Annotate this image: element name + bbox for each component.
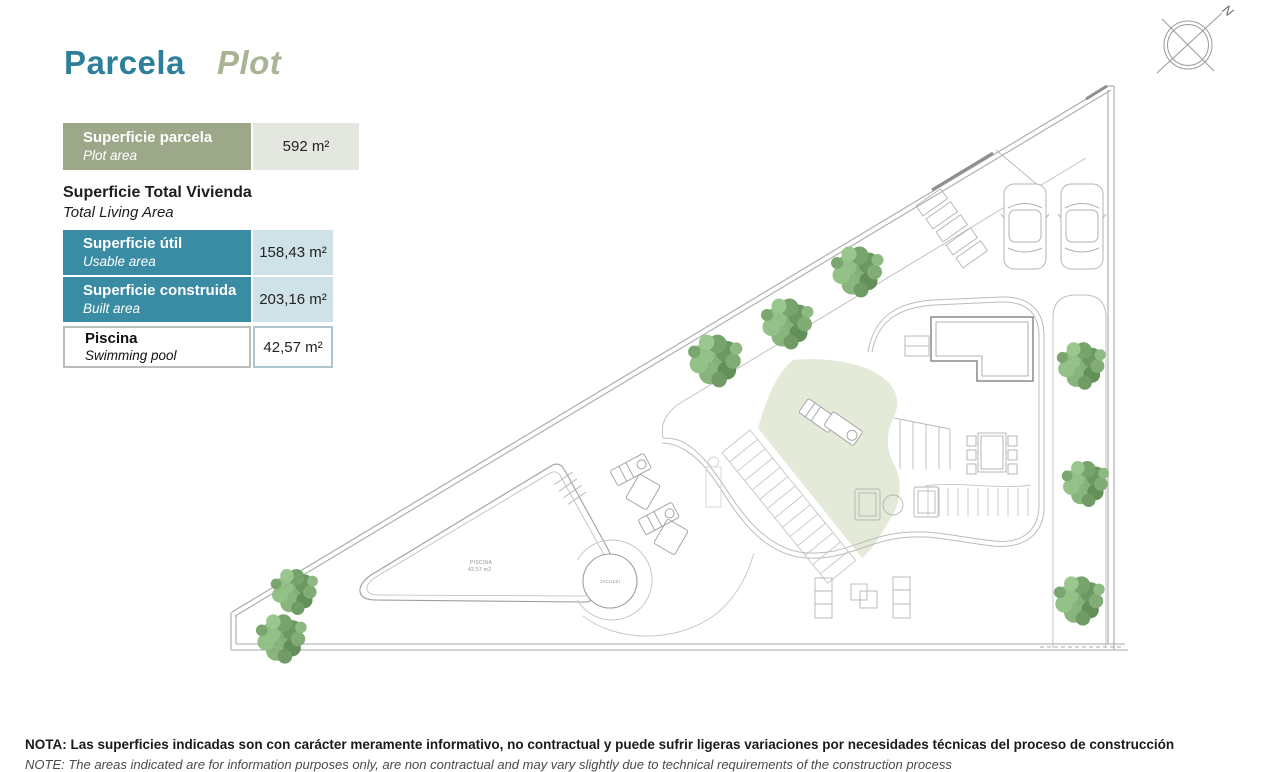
- pool-label: PISCINA: [470, 560, 492, 566]
- plot-area-label-en: Plot area: [83, 148, 251, 165]
- built-area-label-cell: Superficie construida Built area: [63, 277, 251, 322]
- legend-row-swimming-pool: Piscina Swimming pool 42,57 m²: [63, 326, 333, 368]
- dining-set: [967, 433, 1017, 474]
- section-title-es: Superficie Total Vivienda: [63, 183, 252, 204]
- compass-north-label: N: [1219, 2, 1236, 20]
- disclaimer-note: NOTA: Las superficies indicadas son con …: [25, 737, 1260, 772]
- legend-row-usable-area: Superficie útil Usable area 158,43 m²: [63, 230, 333, 275]
- disclaimer-note-en: NOTE: The areas indicated are for inform…: [25, 757, 1260, 772]
- plot-area-label-es: Superficie parcela: [83, 128, 251, 148]
- pool-value: 42,57 m²: [253, 326, 333, 368]
- usable-area-label-es: Superficie útil: [83, 234, 251, 254]
- plot-area-value: 592 m²: [253, 123, 359, 170]
- pool-label-cell: Piscina Swimming pool: [63, 326, 251, 368]
- plot-plan-page: PISCINA 42,57 m2 JACUZZI: [0, 0, 1280, 768]
- site-plan: PISCINA 42,57 m2 JACUZZI: [0, 0, 1280, 768]
- page-title: ParcelaPlot: [64, 44, 281, 82]
- built-area-label-en: Built area: [83, 301, 251, 318]
- decking-stripes-right: [925, 484, 1031, 516]
- car: [1058, 184, 1106, 269]
- utility-box: [905, 336, 929, 356]
- page-title-en: Plot: [217, 44, 281, 81]
- compass-icon: N: [1157, 2, 1237, 73]
- parked-cars: [1001, 184, 1106, 269]
- pool-label-es: Piscina: [85, 329, 249, 349]
- legend-row-plot-area: Superficie parcela Plot area 592 m²: [63, 123, 359, 170]
- wall-segments: [932, 86, 1107, 190]
- legend-section-header: Superficie Total Vivienda Total Living A…: [63, 183, 252, 223]
- built-area-label-es: Superficie construida: [83, 281, 251, 301]
- disclaimer-note-es: NOTA: Las superficies indicadas son con …: [25, 737, 1260, 752]
- usable-area-label-en: Usable area: [83, 254, 251, 271]
- lawn: [758, 359, 900, 558]
- usable-area-value: 158,43 m²: [253, 230, 333, 275]
- pool-label-en: Swimming pool: [85, 348, 249, 365]
- poolside-loungers: [610, 453, 721, 555]
- usable-area-label-cell: Superficie útil Usable area: [63, 230, 251, 275]
- car: [1001, 184, 1049, 269]
- pool-area-label: 42,57 m2: [468, 567, 491, 573]
- legend-row-built-area: Superficie construida Built area 203,16 …: [63, 277, 333, 322]
- plot-area-label-cell: Superficie parcela Plot area: [63, 123, 251, 170]
- stairs-stripes: [894, 418, 950, 469]
- built-area-value: 203,16 m²: [253, 277, 333, 322]
- page-title-es: Parcela: [64, 44, 185, 81]
- pool: PISCINA 42,57 m2: [360, 464, 611, 602]
- terrace-loungers: [815, 577, 910, 618]
- section-title-en: Total Living Area: [63, 204, 252, 223]
- house: [905, 317, 1033, 381]
- jacuzzi-label: JACUZZI: [600, 579, 621, 584]
